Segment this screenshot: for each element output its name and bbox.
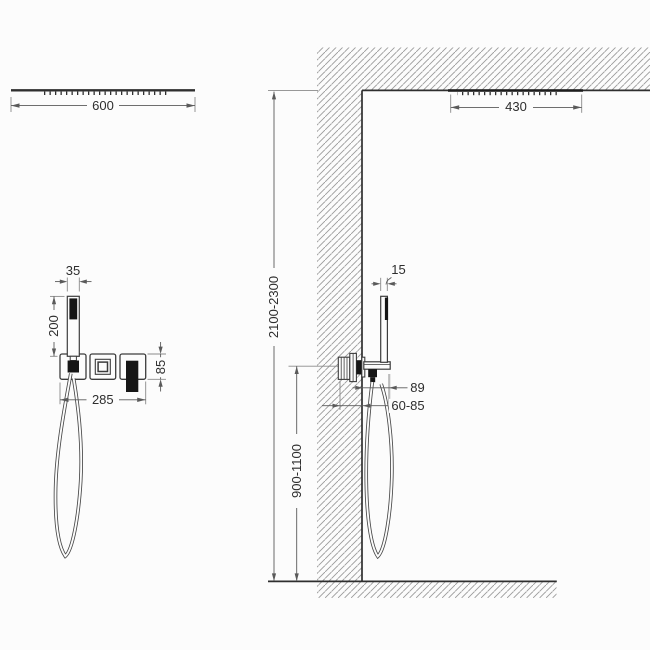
dim-35-label: 35: [66, 263, 80, 277]
holder-bracket: [364, 362, 390, 369]
dim-35-lines: [55, 278, 92, 292]
hand-shower-front: [67, 296, 79, 372]
dim-60-85-label: 60-85: [389, 399, 427, 413]
nozzle-row: [458, 92, 562, 95]
front-view: [11, 90, 195, 556]
dim-15-lines: [372, 278, 397, 292]
hand-shower-face: [69, 298, 77, 319]
dim-89-label: 89: [408, 381, 427, 395]
diverter-knob: [98, 362, 107, 371]
dim-15-label: 15: [391, 263, 405, 277]
dim-85-label: 85: [153, 356, 167, 376]
ceiling-shower-side: [448, 89, 583, 95]
technical-drawing-canvas: 600 35 200 285 85 430 15 2100-2300 900-1…: [0, 0, 650, 650]
nozzle-row: [40, 92, 167, 95]
ceiling-shower-front: [11, 90, 195, 95]
hose-nut: [68, 361, 79, 373]
dim-2100-2300-label: 2100-2300: [267, 273, 281, 341]
wall-section: [268, 48, 650, 599]
hose-nut: [368, 369, 377, 377]
hand-shower-face: [385, 298, 388, 320]
dim-285-label: 285: [89, 393, 116, 407]
dim-900-1100-label: 900-1100: [290, 441, 304, 501]
hand-shower-side: [381, 296, 388, 362]
side-view: [268, 48, 650, 599]
valve-cartridge: [356, 360, 361, 374]
dim-200-label: 200: [47, 312, 61, 340]
mixer-lever: [126, 361, 138, 392]
dim-430-label: 430: [503, 100, 530, 114]
dim-600-label: 600: [90, 98, 117, 112]
